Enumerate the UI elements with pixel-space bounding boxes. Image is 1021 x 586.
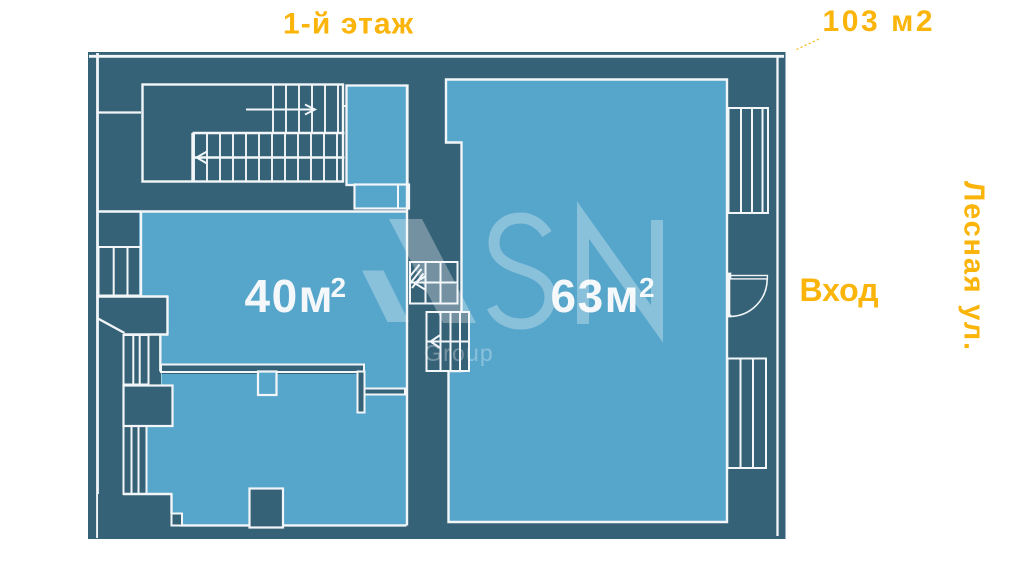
svg-text:40м: 40м xyxy=(245,270,335,322)
svg-text:Вход: Вход xyxy=(800,272,879,308)
svg-text:1-й этаж: 1-й этаж xyxy=(283,8,414,41)
svg-text:Лесная ул.: Лесная ул. xyxy=(958,181,990,350)
svg-text:2: 2 xyxy=(331,272,347,303)
svg-text:103 м2: 103 м2 xyxy=(823,5,933,38)
svg-text:Group: Group xyxy=(424,340,494,366)
